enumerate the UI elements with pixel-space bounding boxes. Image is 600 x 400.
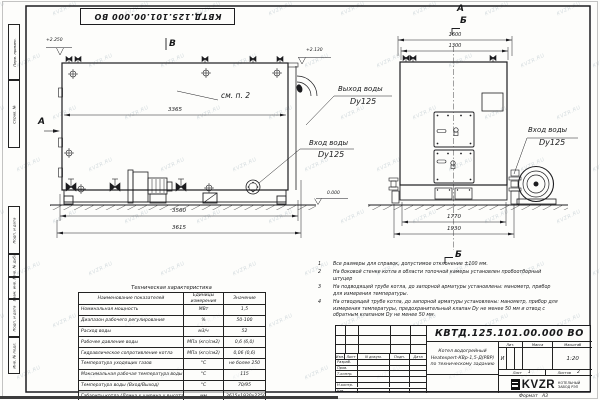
left-pipe-valve xyxy=(389,178,399,203)
dim-3365: 3365 xyxy=(168,108,182,114)
dim-3560: 3560 xyxy=(172,209,186,215)
title-block: КВТД.125.101.00.000 ВО Изм. Лист N докум… xyxy=(335,325,591,392)
kvzr-logo-text: KVZR xyxy=(522,379,555,391)
tech-row: Рабочее давление водыМПа (кгс/см2)0,6 (6… xyxy=(79,337,266,348)
ground-line-front xyxy=(368,205,568,210)
margin-box-sprav: Справ. № xyxy=(8,80,20,148)
margin-box-inv-podl: Инв. № подл. xyxy=(8,337,20,374)
boiler-doors xyxy=(434,112,474,183)
see-note-label: см. п. 2 xyxy=(221,92,250,100)
tech-row: Максимальная рабочая температура воды°С1… xyxy=(79,369,266,380)
elevation-zero: 0.000 xyxy=(327,192,340,197)
tech-row: Гидравлическое сопротивление котлаМПа (к… xyxy=(79,348,266,359)
margin-box-vzam-inv: Взам. инв. № xyxy=(8,277,20,299)
section-label-v: В xyxy=(169,40,176,49)
description-empty-cell xyxy=(426,374,498,393)
lit-mass-scale-values: И 1:20 xyxy=(498,347,592,369)
section-label-b-bottom: Б xyxy=(455,251,462,260)
margin-box-inv-dubl: Инв. № дубл. xyxy=(8,254,20,277)
mass-value xyxy=(523,348,554,369)
dim-1300: 1300 xyxy=(449,44,462,49)
side-dimensions xyxy=(57,114,301,238)
tech-row: Расход водым3/ч52 xyxy=(79,326,266,337)
elevation-2130: +2.130 xyxy=(306,49,323,54)
drawing-sheet: KVZR.RUKVZR.RUKVZR.RUKVZR.RUKVZR.RUKVZR.… xyxy=(0,0,600,400)
top-stamp: КВТД.125.101.00.000 ВО xyxy=(80,8,235,25)
margin-box-perv-primen: Перв. примен. xyxy=(8,24,20,80)
logo-cell: KVZR КОТЕЛЬНЫЙ ЗАВОД РЭП xyxy=(498,375,592,393)
note-3: 3 На подводящей трубе котла, до запорной… xyxy=(318,285,580,298)
dim-3615: 3615 xyxy=(172,226,186,232)
tech-row: Температура воды (Вход/Выход)°С70/95 xyxy=(79,380,266,391)
bottom-edge-bar xyxy=(0,396,338,399)
side-view-linework xyxy=(44,38,392,238)
row-utv: Утв. xyxy=(336,388,426,394)
tech-table-title: Техническая характеристика xyxy=(78,285,265,291)
inlet-label-front: Вход воды xyxy=(528,127,567,134)
format-note: Формат А3 xyxy=(519,394,548,399)
section-label-a-front: А xyxy=(457,5,464,14)
tech-row: Номинальная мощностьМВт1,5 xyxy=(79,305,266,316)
tech-row: Диапазон рабочего регулирования%50-100 xyxy=(79,315,266,326)
outlet-label: Выход воды xyxy=(338,86,383,93)
description-cell: Котел водогрейный Heatexpert-КВр-1,5-Д(Р… xyxy=(426,341,498,374)
margin-box-podp-data-1: Подп. и дата xyxy=(8,206,20,254)
elevation-2250: +2.250 xyxy=(46,39,63,44)
title-block-designation-cell: КВТД.125.101.00.000 ВО xyxy=(426,326,592,341)
kvzr-logo-icon xyxy=(511,379,520,390)
burner xyxy=(128,170,172,203)
note-4: 4 На отводящей трубе котла, до запорной … xyxy=(318,300,580,320)
designation-text: КВТД.125.101.00.000 ВО xyxy=(435,328,584,339)
inlet-flange xyxy=(246,180,260,194)
inlet-dn-label-side: Dy125 xyxy=(318,151,344,159)
tech-table-header: Наименование показателей Единицы измерен… xyxy=(79,293,266,305)
change-rows xyxy=(336,326,426,353)
section-label-b-front: Б xyxy=(460,17,467,26)
tech-row: Температура уходящих газов°Сне более 250 xyxy=(79,358,266,369)
margin-box-podp-data-2: Подп. и дата xyxy=(8,299,20,337)
scale-value: 1:20 xyxy=(553,348,592,369)
fan-blower xyxy=(517,167,556,205)
dim-1770: 1770 xyxy=(447,215,461,221)
inlet-dn-label-front: Dy125 xyxy=(539,139,565,147)
roof-valves xyxy=(66,57,283,64)
section-label-a-side: А xyxy=(38,118,45,127)
lit-value: И xyxy=(499,348,507,369)
note-2: 2 На боковой стенке котла в области топо… xyxy=(318,270,580,283)
note-1: 1 Все размеры для справок, допустимое от… xyxy=(318,262,580,269)
top-stamp-text: КВТД.125.101.00.000 ВО xyxy=(94,12,222,21)
lifting-point-marks xyxy=(64,68,282,194)
chimney xyxy=(288,63,317,190)
front-roof-valves xyxy=(403,56,496,63)
dim-1600: 1600 xyxy=(449,33,462,38)
inlet-label-side: Вход воды xyxy=(309,140,348,147)
outlet-dn-label: Dy125 xyxy=(350,98,376,106)
dim-1930: 1930 xyxy=(447,227,461,233)
notes-list: 1 Все размеры для справок, допустимое от… xyxy=(318,262,580,322)
side-leaders xyxy=(46,48,392,205)
tech-characteristics-table: Наименование показателей Единицы измерен… xyxy=(78,292,266,400)
